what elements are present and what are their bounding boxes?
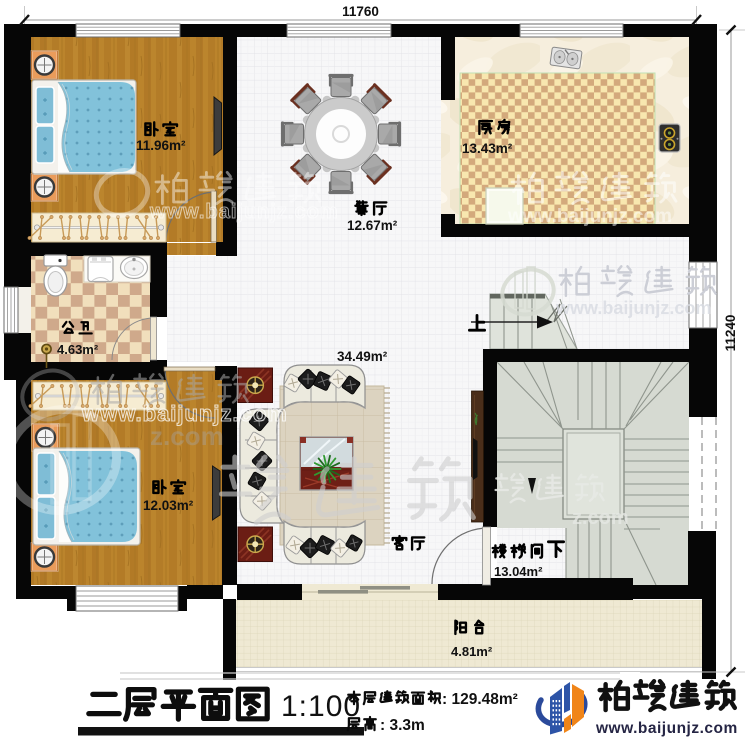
svg-text:12.03m²: 12.03m²	[143, 498, 194, 513]
svg-text:: 3.3m: : 3.3m	[380, 717, 425, 734]
svg-text:13.04m²: 13.04m²	[494, 564, 543, 579]
svg-text:11760: 11760	[342, 4, 379, 19]
svg-text:z.com: z.com	[572, 507, 629, 529]
svg-text:4.81m²: 4.81m²	[451, 644, 493, 659]
svg-text:www.baijunjz.com: www.baijunjz.com	[507, 206, 672, 227]
svg-text:34.49m²: 34.49m²	[337, 349, 388, 364]
svg-text:12.67m²: 12.67m²	[347, 218, 398, 233]
svg-text:: 129.48m²: : 129.48m²	[442, 691, 518, 708]
svg-text:11.96m²: 11.96m²	[136, 138, 186, 153]
svg-text:4.63m²: 4.63m²	[57, 342, 99, 357]
svg-text:11240: 11240	[723, 315, 738, 352]
svg-text:13.43m²: 13.43m²	[462, 141, 513, 156]
svg-text:www.baijunjz.com: www.baijunjz.com	[149, 201, 339, 223]
svg-text:www.baijunjz.com: www.baijunjz.com	[555, 298, 711, 318]
svg-text:www.baijunjz.com: www.baijunjz.com	[595, 720, 738, 737]
svg-text:z.com: z.com	[150, 421, 224, 451]
